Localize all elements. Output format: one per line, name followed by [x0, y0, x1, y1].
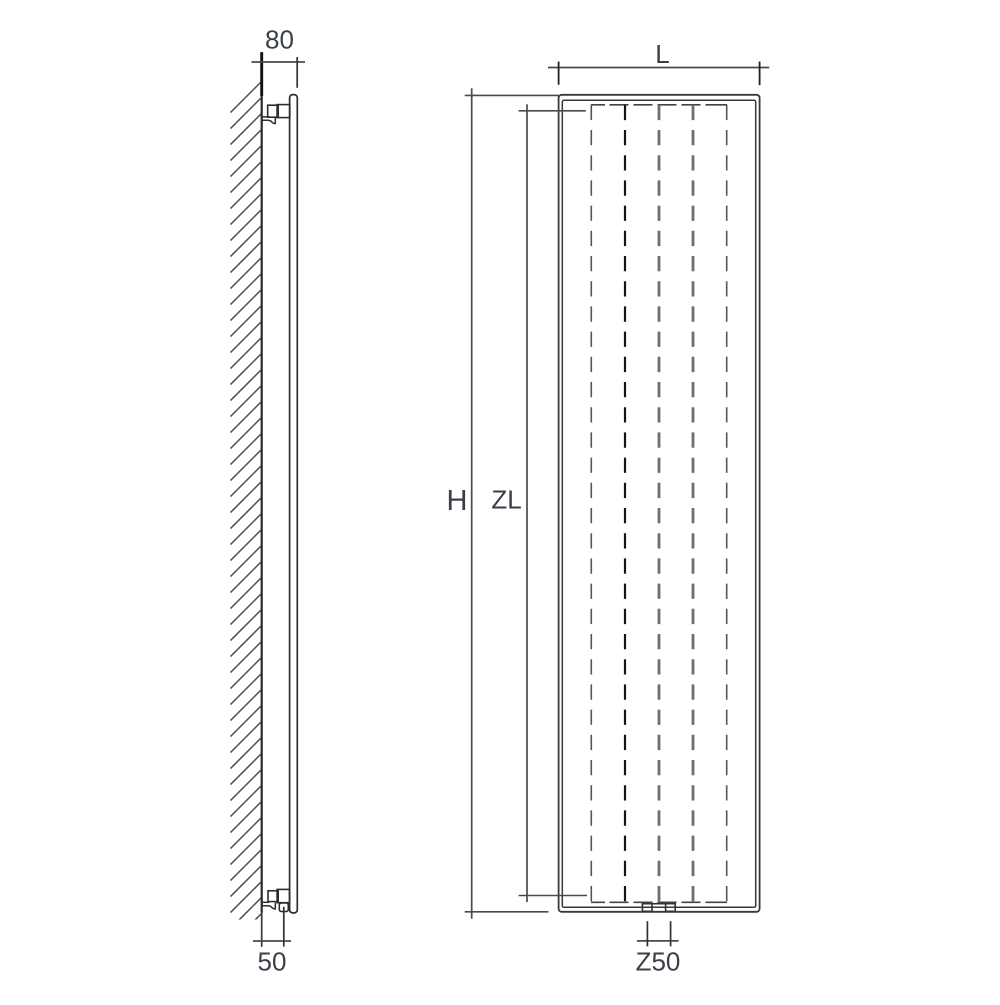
svg-text:H: H	[447, 485, 468, 517]
svg-text:Z50: Z50	[636, 947, 681, 977]
svg-text:80: 80	[265, 25, 294, 55]
svg-text:L: L	[655, 39, 669, 69]
svg-text:50: 50	[258, 947, 287, 977]
svg-text:ZL: ZL	[491, 485, 521, 515]
